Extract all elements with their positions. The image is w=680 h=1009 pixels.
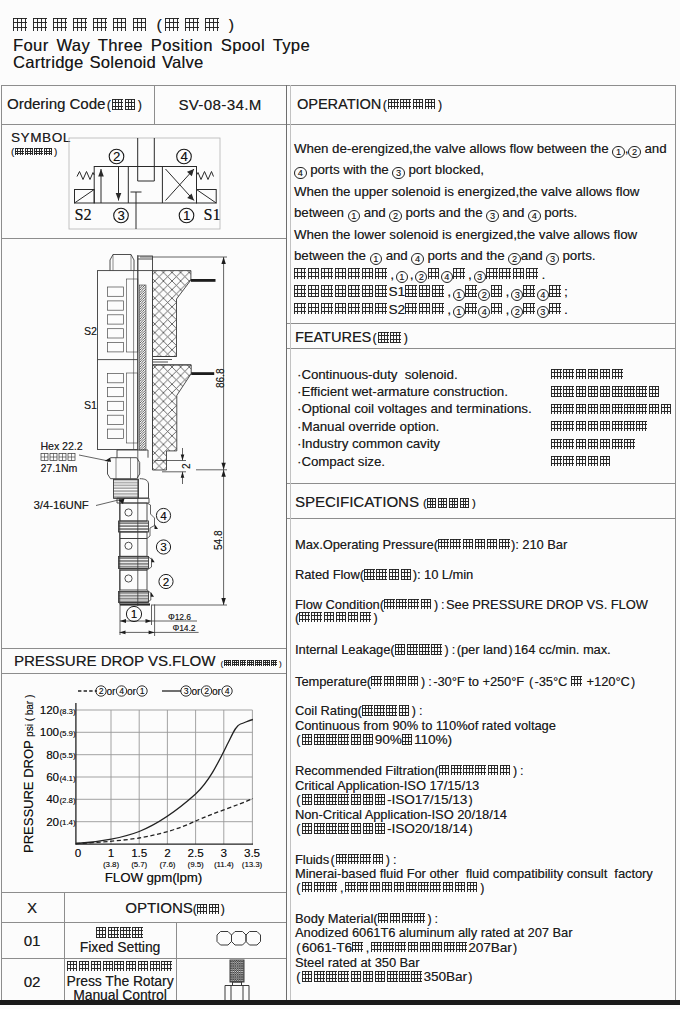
svg-text:3: 3 <box>184 686 189 696</box>
svg-text:(1.4): (1.4) <box>60 818 76 827</box>
svg-text:(5.9): (5.9) <box>60 729 76 738</box>
svg-text:4: 4 <box>180 149 187 164</box>
svg-text:120: 120 <box>40 704 59 716</box>
svg-text:40: 40 <box>46 793 59 805</box>
svg-text:S2: S2 <box>75 206 92 223</box>
svg-text:(3.8): (3.8) <box>103 860 119 869</box>
svg-text:(5.5): (5.5) <box>60 751 76 760</box>
svg-text:80: 80 <box>46 749 59 761</box>
svg-text:S1: S1 <box>204 206 221 223</box>
svg-text:(2.8): (2.8) <box>60 796 76 805</box>
svg-text:20: 20 <box>46 816 59 828</box>
svg-text:2.5: 2.5 <box>188 847 204 859</box>
svg-text:4: 4 <box>160 510 167 522</box>
svg-text:or: or <box>212 686 222 697</box>
svg-text:Φ14.2: Φ14.2 <box>173 623 196 633</box>
svg-text:or: or <box>127 686 137 697</box>
svg-text:54.8: 54.8 <box>213 530 224 550</box>
svg-text:(11.4): (11.4) <box>214 860 234 869</box>
svg-text:2: 2 <box>99 686 104 696</box>
svg-text:(5.7): (5.7) <box>131 860 147 869</box>
svg-text:4: 4 <box>225 686 230 696</box>
svg-text:60: 60 <box>46 771 59 783</box>
svg-text:86.8: 86.8 <box>215 368 226 388</box>
svg-text:Hex 22.2: Hex 22.2 <box>41 440 83 452</box>
svg-text:1: 1 <box>183 208 190 223</box>
svg-text:1.5: 1.5 <box>131 847 147 859</box>
svg-text:(8.3): (8.3) <box>60 707 76 716</box>
svg-text:PRESSURE DROP psi ( bar ): PRESSURE DROP psi ( bar ) <box>21 695 36 853</box>
svg-text:2: 2 <box>204 686 209 696</box>
svg-text:(13.3): (13.3) <box>242 860 263 869</box>
svg-text:2: 2 <box>163 576 169 588</box>
svg-text:(7.6): (7.6) <box>159 860 175 869</box>
svg-text:3.5: 3.5 <box>244 847 260 859</box>
svg-text:1: 1 <box>131 608 137 620</box>
svg-text:1: 1 <box>140 686 145 696</box>
svg-text:0: 0 <box>75 847 81 859</box>
svg-text:2: 2 <box>181 463 192 469</box>
svg-text:(9.5): (9.5) <box>188 860 204 869</box>
svg-text:FLOW gpm(lpm): FLOW gpm(lpm) <box>105 870 202 885</box>
svg-text:3: 3 <box>117 208 124 223</box>
svg-text:4: 4 <box>119 686 124 696</box>
svg-text:Φ12.6: Φ12.6 <box>168 612 191 622</box>
svg-text:S2: S2 <box>84 325 97 337</box>
svg-text:3: 3 <box>221 847 227 859</box>
svg-text:27.1Nm: 27.1Nm <box>41 462 78 474</box>
svg-text:S1: S1 <box>84 399 97 411</box>
svg-text:1: 1 <box>108 847 114 859</box>
svg-text:2: 2 <box>113 149 120 164</box>
svg-text:2: 2 <box>164 847 170 859</box>
svg-text:100: 100 <box>40 726 59 738</box>
svg-text:or: or <box>107 686 117 697</box>
svg-text:(4.1): (4.1) <box>60 774 76 783</box>
svg-text:3: 3 <box>160 541 166 553</box>
svg-text:3/4-16UNF: 3/4-16UNF <box>34 499 89 511</box>
svg-text:or: or <box>192 686 202 697</box>
